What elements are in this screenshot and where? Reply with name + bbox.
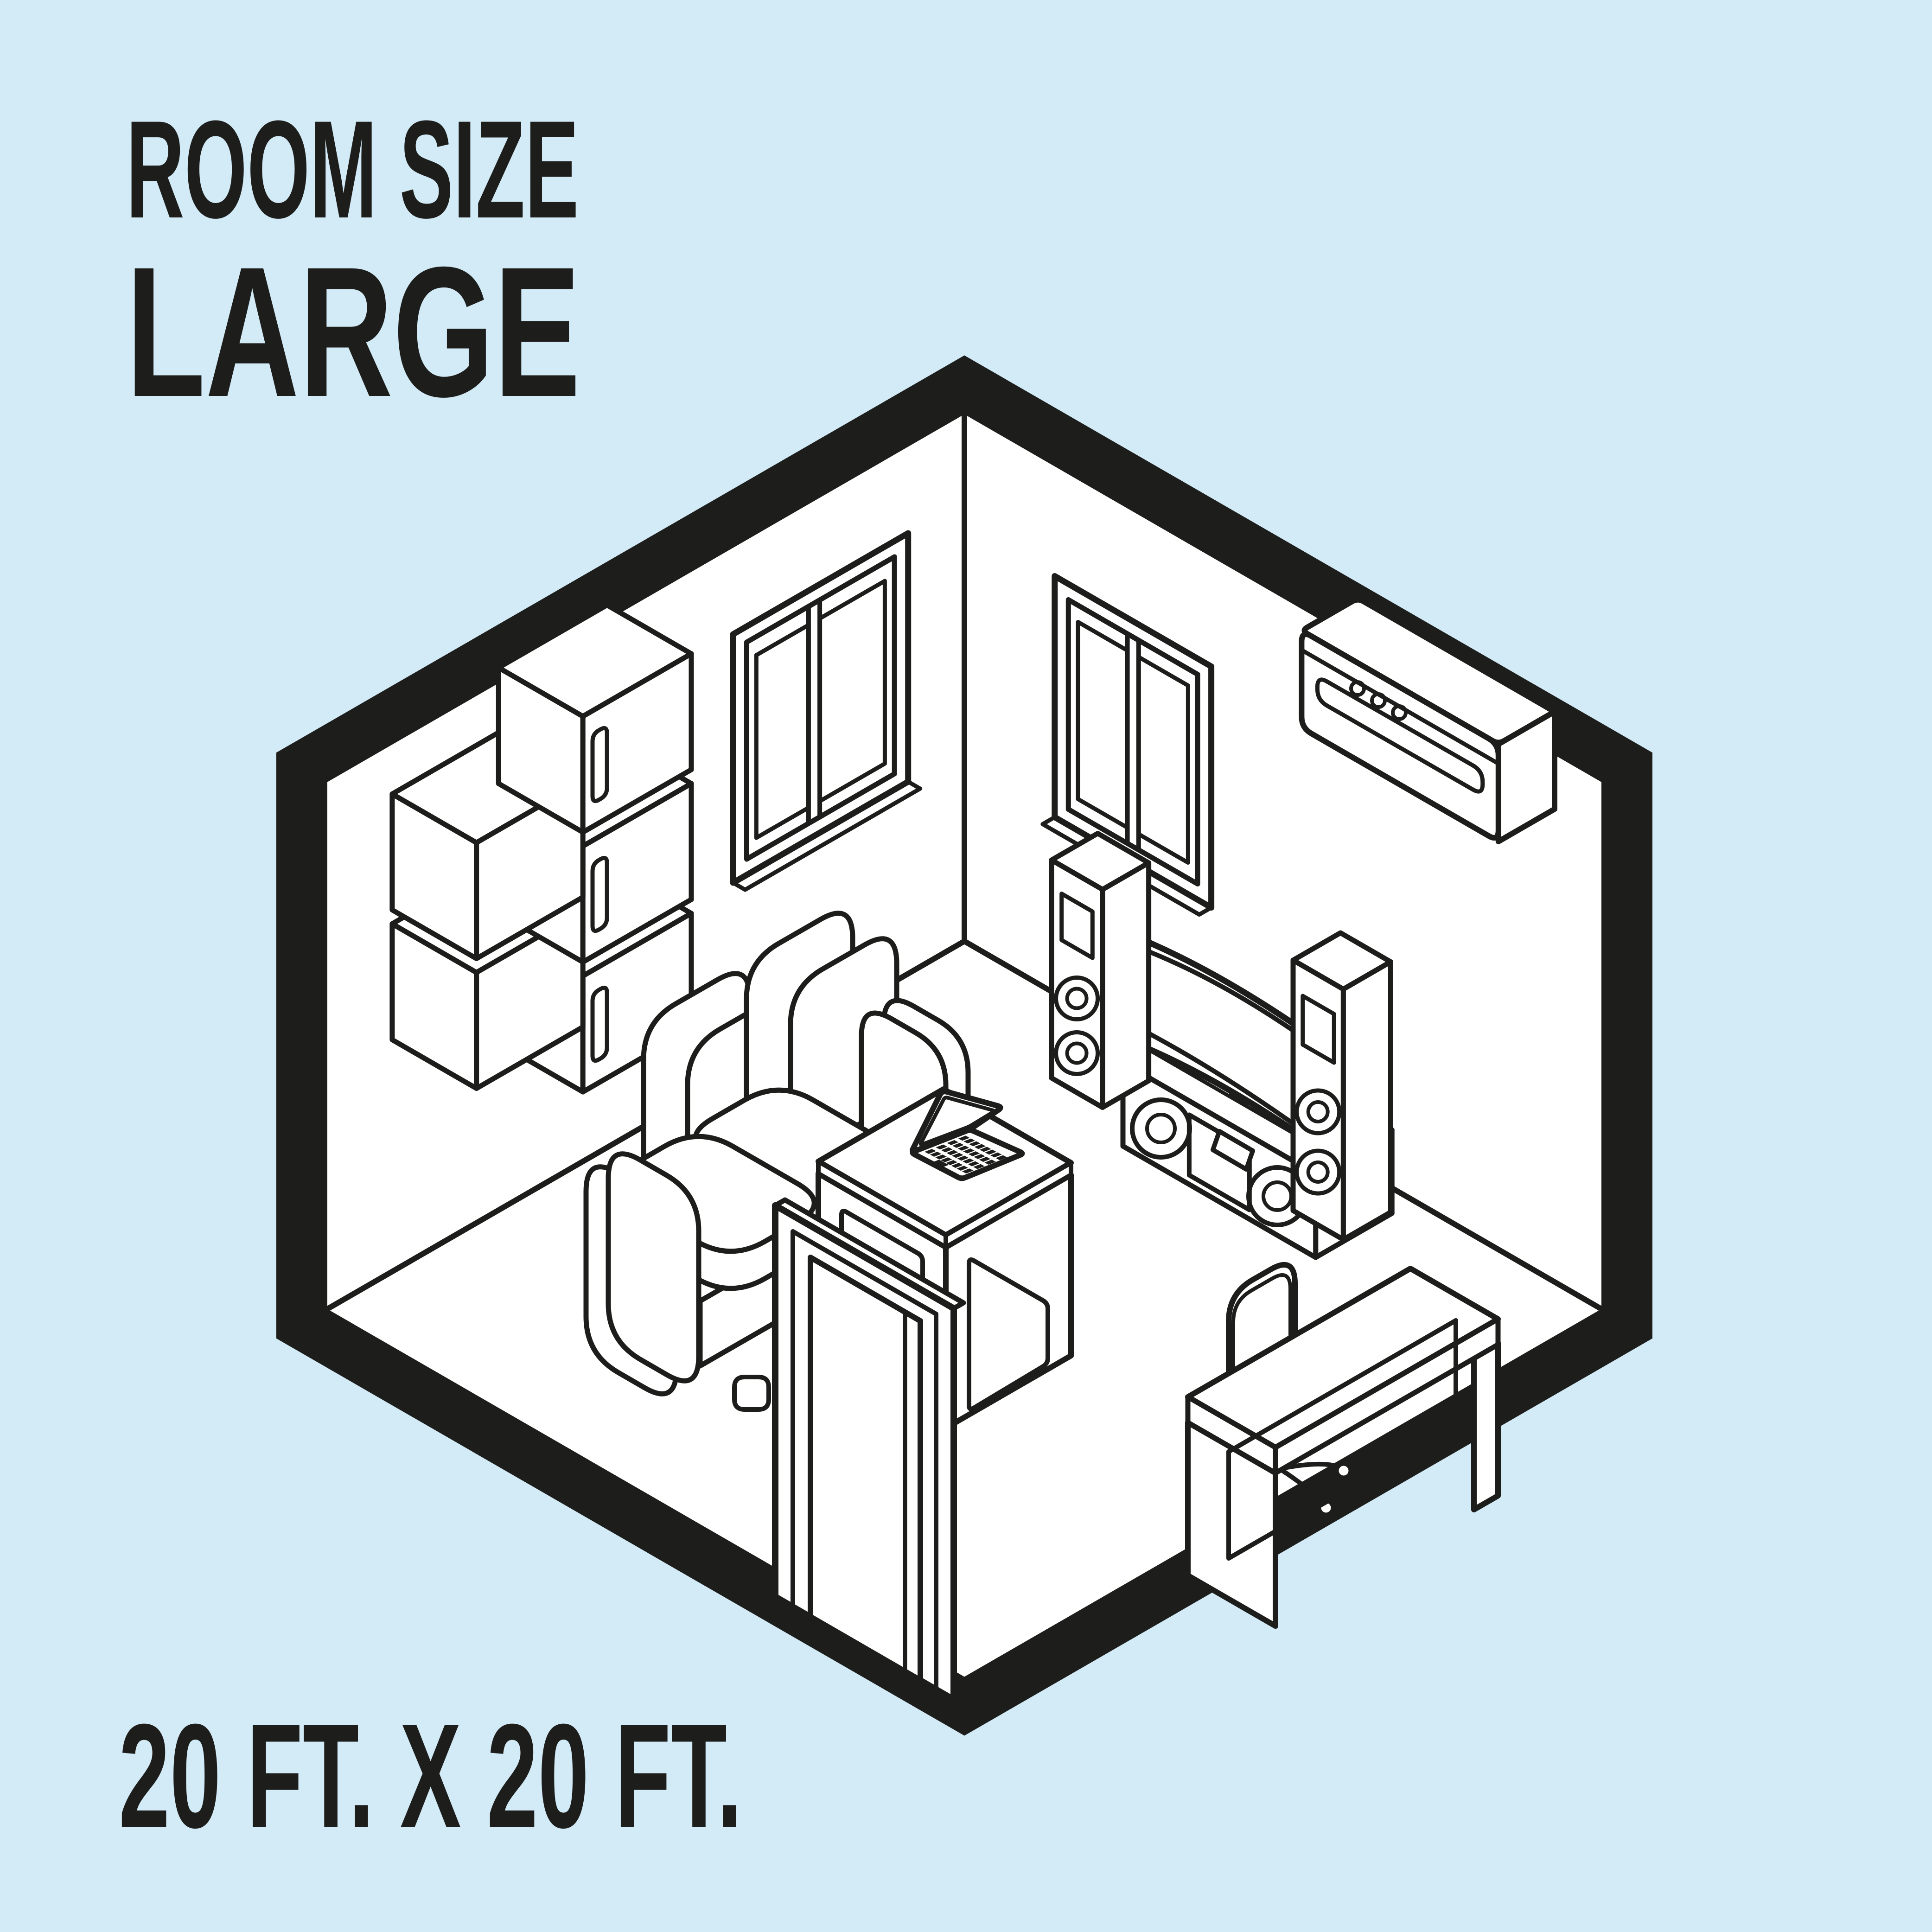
room-size-poster: ROOM SIZE LARGE 20 FT. X 20 FT. [0, 0, 1932, 1932]
tower-speaker-right [1293, 933, 1390, 1240]
dimensions-label: 20 FT. X 20 FT. [119, 1702, 742, 1850]
tower-speaker-left [1052, 834, 1149, 1108]
room-illustration [0, 0, 1932, 1932]
